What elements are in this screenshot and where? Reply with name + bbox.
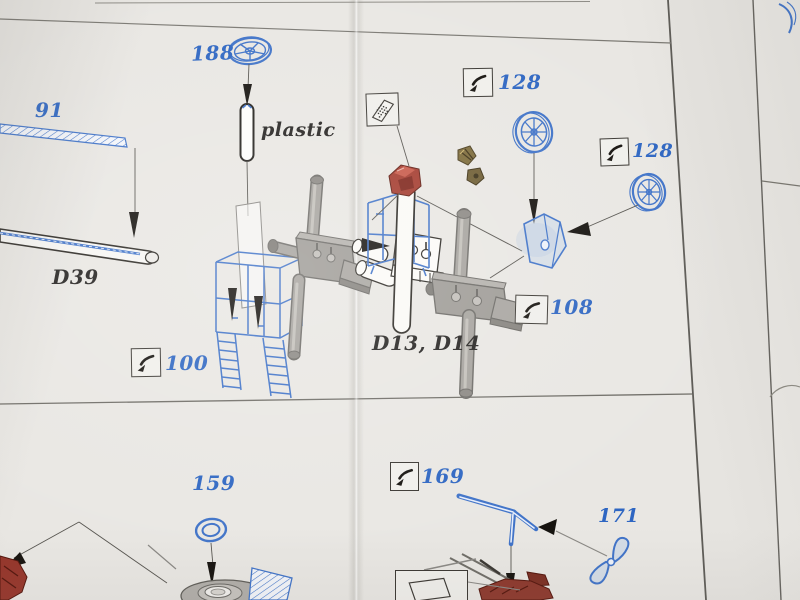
wingnut-171-drawing [588,535,632,586]
pe-fret-symbol-box [365,92,399,126]
leader-wheel-right [585,205,638,228]
part-label-d13-d14: D13, D14 [372,331,480,355]
stray-line [148,545,176,569]
part-number-171: 171 [598,505,639,527]
bend-symbol-box-128-top [463,68,494,98]
bend-arrow-icon [133,350,159,375]
pe-strip-91-drawing [0,124,139,238]
plastic-rod-drawing [241,64,254,216]
leader-bracket [490,256,524,278]
leader-bottom-left [4,522,167,583]
bend-arrow-icon [392,464,417,489]
white-column-drawing [393,184,415,334]
part-number-188: 188 [191,40,235,65]
arrow-wheel-right [567,222,591,236]
pe-fret-icon [368,95,398,125]
part-number-128-top: 128 [498,70,541,94]
jack-right-photo [426,210,527,398]
drum-part-drawing [181,568,292,600]
bend-symbol-box-108 [515,295,549,325]
bend-arrow-icon [602,140,628,165]
rod-d39-drawing [0,229,159,264]
red-assembly-bottom [479,572,553,600]
part-number-159: 159 [192,471,235,495]
frame-lines [0,2,692,405]
wheel-bracket-drawing [516,214,566,268]
flat-sheet-icon [397,572,466,600]
flat-sheet-symbol-box [395,570,468,600]
bend-symbol-box-128-right [600,138,630,167]
diagram-artwork [0,0,800,600]
bend-arrow-icon [518,297,546,323]
bend-arrow-icon [465,70,491,95]
bend-symbol-box-169 [390,462,419,491]
arrow-171 [538,519,557,535]
brass-parts-photo [458,146,484,185]
rod-169-drawing [459,496,536,544]
clear-sheet-drawing [236,202,266,308]
part-number-91: 91 [35,98,64,122]
red-resin-part [389,165,421,196]
part-number-108: 108 [550,295,593,319]
washer-159-drawing [195,517,228,543]
page-edges [668,0,800,600]
plastic-note: plastic [261,119,336,141]
instruction-sheet: 188 91 plastic D39 128 128 108 100 D13, … [0,0,800,600]
part-number-128-right: 128 [632,140,673,162]
spoked-wheel-top-drawing [509,109,556,157]
bend-symbol-box-100 [131,348,162,378]
fold-crease [348,0,364,600]
part-label-d39: D39 [52,265,99,289]
leader-171 [556,531,607,556]
part-number-169: 169 [421,464,464,488]
part-number-100: 100 [165,351,208,375]
